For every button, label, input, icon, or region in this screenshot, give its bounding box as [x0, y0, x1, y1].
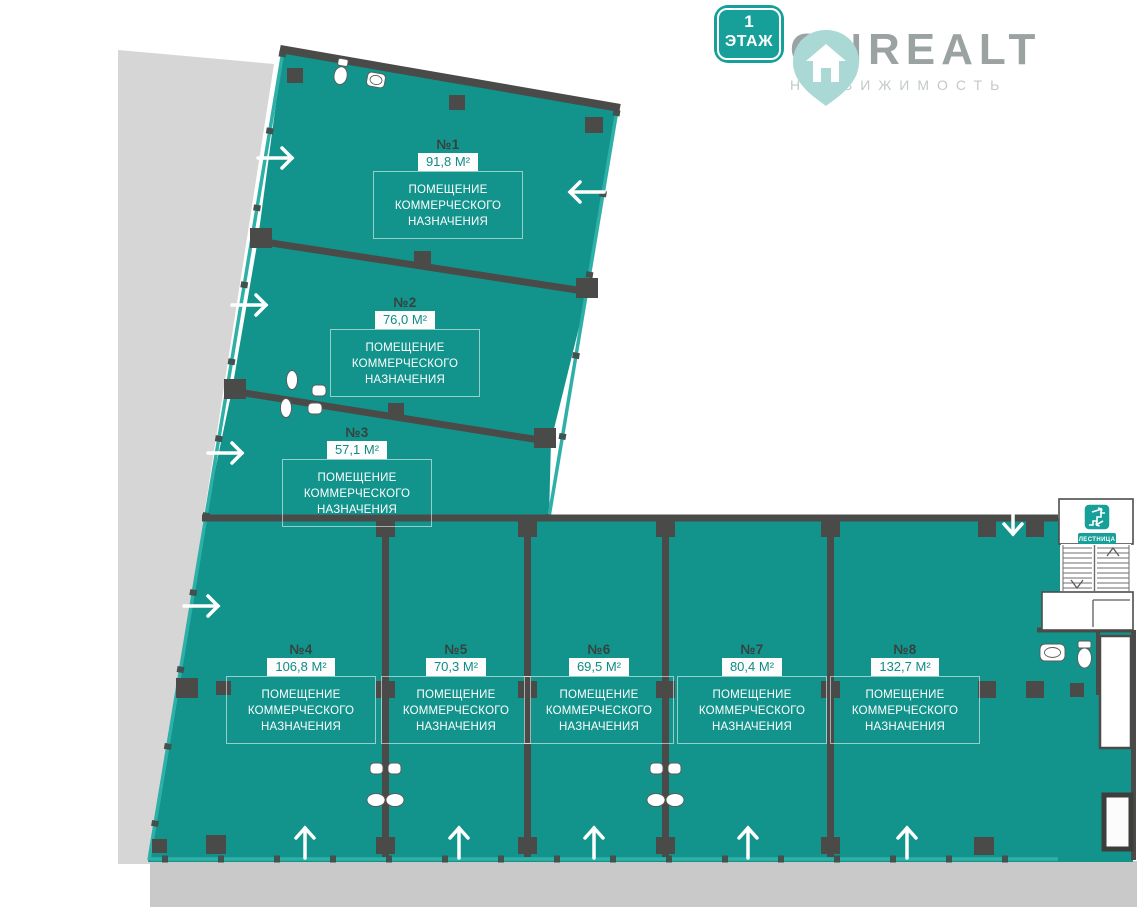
room-type-line: КОММЕРЧЕСКОГО: [231, 704, 371, 720]
room-area-badge: 106,8 М²: [267, 658, 334, 676]
room-5-label: №5 70,3 М² ПОМЕЩЕНИЕ КОММЕРЧЕСКОГО НАЗНА…: [381, 642, 531, 744]
room-type-line: КОММЕРЧЕСКОГО: [386, 704, 526, 720]
room-type-line: КОММЕРЧЕСКОГО: [287, 487, 427, 503]
room-7-label: №7 80,4 М² ПОМЕЩЕНИЕ КОММЕРЧЕСКОГО НАЗНА…: [677, 642, 827, 744]
room-type-line: НАЗНАЧЕНИЯ: [335, 373, 475, 389]
room-2-label: №2 76,0 М² ПОМЕЩЕНИЕ КОММЕРЧЕСКОГО НАЗНА…: [330, 295, 480, 397]
room-type-line: ПОМЕЩЕНИЕ: [529, 688, 669, 704]
room-type-line: КОММЕРЧЕСКОГО: [835, 704, 975, 720]
room-number: №4: [226, 642, 376, 657]
entry-vestibule: [1104, 795, 1131, 849]
room-type-box: ПОМЕЩЕНИЕ КОММЕРЧЕСКОГО НАЗНАЧЕНИЯ: [830, 676, 980, 744]
room-area-badge: 70,3 М²: [426, 658, 486, 676]
room-type-line: КОММЕРЧЕСКОГО: [335, 357, 475, 373]
corridor-shaft: [1100, 636, 1131, 748]
room-type-box: ПОМЕЩЕНИЕ КОММЕРЧЕСКОГО НАЗНАЧЕНИЯ: [373, 171, 523, 239]
room-type-line: ПОМЕЩЕНИЕ: [231, 688, 371, 704]
room-type-line: НАЗНАЧЕНИЯ: [386, 720, 526, 736]
room-type-line: ПОМЕЩЕНИЕ: [835, 688, 975, 704]
room-type-line: ПОМЕЩЕНИЕ: [378, 183, 518, 199]
room-type-line: КОММЕРЧЕСКОГО: [682, 704, 822, 720]
room-type-line: НАЗНАЧЕНИЯ: [287, 503, 427, 519]
room-type-box: ПОМЕЩЕНИЕ КОММЕРЧЕСКОГО НАЗНАЧЕНИЯ: [524, 676, 674, 744]
room-number: №2: [330, 295, 480, 310]
room-number: №5: [381, 642, 531, 657]
room-type-line: НАЗНАЧЕНИЯ: [529, 720, 669, 736]
floor-selector-badge[interactable]: 1 ЭТАЖ: [714, 5, 784, 63]
room-type-line: НАЗНАЧЕНИЯ: [682, 720, 822, 736]
room-1-label: №1 91,8 М² ПОМЕЩЕНИЕ КОММЕРЧЕСКОГО НАЗНА…: [373, 137, 523, 239]
floor-number: 1: [714, 11, 784, 33]
room-number: №8: [830, 642, 980, 657]
room-type-box: ПОМЕЩЕНИЕ КОММЕРЧЕСКОГО НАЗНАЧЕНИЯ: [330, 329, 480, 397]
room-3-label: №3 57,1 М² ПОМЕЩЕНИЕ КОММЕРЧЕСКОГО НАЗНА…: [282, 425, 432, 527]
room-type-box: ПОМЕЩЕНИЕ КОММЕРЧЕСКОГО НАЗНАЧЕНИЯ: [677, 676, 827, 744]
room-type-line: ПОМЕЩЕНИЕ: [335, 341, 475, 357]
room-area-badge: 80,4 М²: [722, 658, 782, 676]
room-type-box: ПОМЕЩЕНИЕ КОММЕРЧЕСКОГО НАЗНАЧЕНИЯ: [226, 676, 376, 744]
floor-word: ЭТАЖ: [714, 33, 784, 51]
room-type-box: ПОМЕЩЕНИЕ КОММЕРЧЕСКОГО НАЗНАЧЕНИЯ: [282, 459, 432, 527]
room-type-line: ПОМЕЩЕНИЕ: [682, 688, 822, 704]
room-type-box: ПОМЕЩЕНИЕ КОММЕРЧЕСКОГО НАЗНАЧЕНИЯ: [381, 676, 531, 744]
bathroom-toilet-icon: [1078, 641, 1092, 668]
room-6-label: №6 69,5 М² ПОМЕЩЕНИЕ КОММЕРЧЕСКОГО НАЗНА…: [524, 642, 674, 744]
room-area-badge: 69,5 М²: [569, 658, 629, 676]
room-number: №1: [373, 137, 523, 152]
bathroom-sink-icon: [1040, 644, 1065, 661]
room-number: №6: [524, 642, 674, 657]
pavement-strip: [150, 861, 1137, 907]
room-area-badge: 76,0 М²: [375, 311, 435, 329]
room-type-line: ПОМЕЩЕНИЕ: [287, 471, 427, 487]
room-area-badge: 132,7 М²: [871, 658, 938, 676]
room-area-badge: 57,1 М²: [327, 441, 387, 459]
room-number: №3: [282, 425, 432, 440]
room-type-line: НАЗНАЧЕНИЯ: [231, 720, 371, 736]
room-4-label: №4 106,8 М² ПОМЕЩЕНИЕ КОММЕРЧЕСКОГО НАЗН…: [226, 642, 376, 744]
room-number: №7: [677, 642, 827, 657]
wc-sink-icon: [366, 72, 386, 89]
house-pin-icon: [790, 28, 862, 106]
room-type-line: НАЗНАЧЕНИЯ: [835, 720, 975, 736]
room-type-line: КОММЕРЧЕСКОГО: [529, 704, 669, 720]
stairs-label: ЛЕСТНИЦА: [1079, 537, 1116, 543]
stair-landing-bottom: [1042, 592, 1133, 630]
floorplan-canvas: ЛЕСТНИЦА: [0, 0, 1144, 910]
floorplan-page: { "floor_badge": { "level": "1", "label"…: [0, 0, 1144, 910]
room-type-line: ПОМЕЩЕНИЕ: [386, 688, 526, 704]
onrealt-logo: ONREALT НЕДВИЖИМОСТЬ: [790, 28, 1041, 93]
room-area-badge: 91,8 М²: [418, 153, 478, 171]
room-type-line: НАЗНАЧЕНИЯ: [378, 215, 518, 231]
room-8-label: №8 132,7 М² ПОМЕЩЕНИЕ КОММЕРЧЕСКОГО НАЗН…: [830, 642, 980, 744]
room-type-line: КОММЕРЧЕСКОГО: [378, 199, 518, 215]
